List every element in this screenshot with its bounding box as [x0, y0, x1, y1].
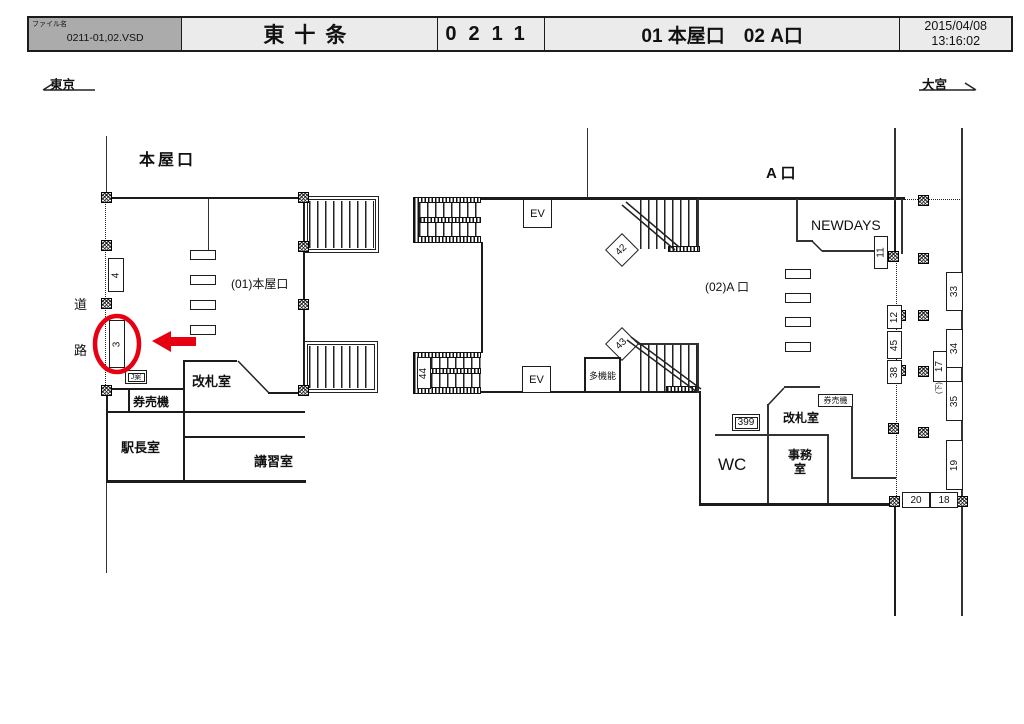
- date-value: 2015/04/08: [924, 19, 987, 34]
- wall-segment: [851, 406, 853, 479]
- ad-position-44-label: 44: [419, 367, 430, 378]
- pillar: [888, 251, 899, 262]
- wall-segment: [827, 434, 829, 505]
- stair-treads: [640, 345, 697, 391]
- sign-stem-line: [208, 199, 209, 251]
- wall-segment: [715, 434, 828, 436]
- wall-segment: [481, 242, 483, 353]
- ticket-machine-room-label: 券売機: [133, 393, 169, 410]
- ad-position-35-label: 35: [949, 395, 960, 406]
- training-room-label: 講習室: [254, 451, 293, 470]
- wall-segment: [767, 404, 769, 505]
- hanging-sign: [190, 325, 216, 335]
- ad-position-399: 399: [732, 414, 760, 431]
- pillar: [298, 192, 309, 203]
- right-area-label: (02)A 口: [705, 278, 749, 295]
- ad-position-43: 43: [605, 327, 639, 361]
- ad-position-42-label: 42: [614, 242, 630, 258]
- stair-hatch-band: [668, 246, 700, 252]
- pillar: [888, 423, 899, 434]
- wall-segment: [183, 360, 185, 482]
- wall-segment: [699, 503, 898, 506]
- newdays-label: NEWDAYS: [811, 217, 881, 233]
- kiosk-line: [796, 199, 798, 241]
- ad-position-34-label: 34: [949, 343, 960, 354]
- wall-segment: [106, 197, 306, 199]
- stair-treads: [640, 199, 698, 249]
- staircase: [304, 341, 378, 393]
- wall-segment: [851, 477, 896, 479]
- platform-line: [894, 128, 896, 201]
- staircase: [304, 196, 379, 253]
- wall-segment: [894, 199, 896, 254]
- ad-position-35: 35: [946, 381, 963, 421]
- road-label-2: 路: [74, 340, 87, 359]
- stair-edge: [697, 199, 699, 252]
- ad-position-33: 33: [946, 272, 963, 311]
- hanging-sign: [785, 293, 811, 303]
- stair-treads: [309, 201, 374, 248]
- boundary-line: [106, 136, 107, 197]
- pillar: [918, 427, 929, 438]
- multifunction-toilet: 多機能: [584, 357, 621, 393]
- dotted-facade-line: [105, 199, 106, 391]
- ad-position-43-label: 43: [614, 336, 630, 352]
- wall-segment: [784, 386, 820, 388]
- ad-position-42: 42: [605, 233, 639, 267]
- ad-position-399-label: 399: [735, 417, 758, 429]
- ad-position-34: 34: [946, 329, 963, 368]
- ad-position-19-label: 19: [949, 459, 960, 470]
- right-entrance-title: A 口: [766, 162, 795, 183]
- entrance-list: 01 本屋口 02 A口: [545, 18, 901, 50]
- pillar: [918, 310, 929, 321]
- pillar: [101, 298, 112, 309]
- direction-omiya-label: 大宮: [922, 74, 947, 93]
- stair-treads: [431, 374, 481, 387]
- ad-position-19: 19: [946, 440, 963, 490]
- stair-edge: [697, 343, 699, 393]
- kiosk-line: [796, 240, 813, 242]
- ad-position-3-label: 3: [112, 341, 123, 347]
- ad-position-12: 12: [887, 305, 902, 329]
- boundary-line: [106, 482, 107, 573]
- file-name-caption: ファイル名: [32, 19, 67, 29]
- j-sign-box: J案: [125, 370, 147, 384]
- pillar: [101, 240, 112, 251]
- datetime-cell: 2015/04/08 13:16:02: [900, 18, 1011, 50]
- left-area-label: (01)本屋口: [231, 275, 288, 292]
- stationmaster-room-label: 駅長室: [121, 437, 160, 456]
- ad-position-38: 38: [887, 360, 902, 384]
- stair-hatch-band: [666, 386, 696, 392]
- wall-segment: [699, 391, 701, 506]
- ad-position-4: 4: [108, 258, 124, 292]
- wall-segment: [901, 199, 903, 254]
- hanging-sign: [190, 300, 216, 310]
- wall-segment: [106, 391, 108, 482]
- ad-position-45: 45: [887, 331, 902, 359]
- hanging-sign: [190, 250, 216, 260]
- stair-treads: [431, 358, 481, 368]
- j-sign-label: J案: [128, 373, 145, 382]
- ad-position-17: 17: [933, 351, 947, 382]
- left-entrance-title: 本屋口: [139, 146, 196, 170]
- pillar: [957, 496, 968, 507]
- wall-segment: [106, 480, 306, 483]
- file-name-value: 0211-01,02.VSD: [67, 32, 144, 44]
- kiosk-diagonal: [812, 241, 822, 251]
- pillar: [101, 385, 112, 396]
- wall-segment: [183, 360, 237, 362]
- wc-label: WC: [718, 455, 746, 475]
- platform-line: [894, 504, 896, 616]
- ad-position-11: 11: [874, 236, 888, 269]
- stair-treads: [309, 346, 373, 388]
- pillar: [298, 385, 309, 396]
- platform-line: [961, 128, 963, 616]
- wall-segment: [128, 388, 130, 413]
- title-block: ファイル名 0211-01,02.VSD 東十条 0211 01 本屋口 02 …: [27, 16, 1013, 52]
- right-gate-room-label: 改札室: [783, 409, 819, 426]
- hanging-sign: [785, 342, 811, 352]
- ad-position-11-label: 11: [875, 247, 886, 257]
- stair-treads: [419, 203, 481, 217]
- overlay-graphics: [0, 0, 1024, 724]
- ad-position-38-label: 38: [889, 366, 900, 377]
- office-room-line1: 事務: [788, 448, 812, 462]
- elevator-bottom: EV: [522, 366, 551, 393]
- ad-position-18: 18: [930, 492, 958, 508]
- station-name: 東十条: [182, 18, 438, 50]
- ad-position-12-label: 12: [889, 311, 900, 322]
- pillar: [298, 299, 309, 310]
- ad-position-4-label: 4: [111, 272, 122, 278]
- elevator-top: EV: [523, 199, 552, 228]
- direction-tokyo-label: 東京: [50, 74, 75, 93]
- time-value: 13:16:02: [931, 34, 980, 49]
- station-floor-plan-page: ファイル名 0211-01,02.VSD 東十条 0211 01 本屋口 02 …: [0, 0, 1024, 724]
- left-gate-room-label: 改札室: [192, 371, 231, 390]
- office-room-label: 事務 室: [778, 448, 822, 476]
- hanging-sign: [190, 275, 216, 285]
- stair-hatch-band: [413, 197, 419, 243]
- ad-position-17-note-text: (下): [934, 382, 944, 394]
- pillar: [298, 241, 309, 252]
- stair-treads: [419, 223, 481, 236]
- office-room-line2: 室: [794, 462, 806, 476]
- file-name-cell: ファイル名 0211-01,02.VSD: [29, 18, 182, 50]
- ad-position-44: 44: [417, 357, 431, 389]
- boundary-line: [587, 128, 588, 197]
- ad-position-3: 3: [109, 320, 125, 368]
- dotted-line: [903, 199, 962, 200]
- ad-position-33-label: 33: [949, 286, 960, 297]
- wall-segment: [107, 411, 305, 413]
- ad-position-17-label: 17: [935, 361, 946, 372]
- right-ticket-machine: 券売機: [818, 394, 853, 407]
- wall-segment: [107, 388, 183, 390]
- right-gate-diagonal: [768, 388, 784, 405]
- ad-position-20: 20: [902, 492, 930, 508]
- station-code: 0211: [438, 18, 545, 50]
- stair-hatch-band: [413, 236, 481, 243]
- hanging-sign: [785, 269, 811, 279]
- pillar: [918, 366, 929, 377]
- pillar: [889, 496, 900, 507]
- kiosk-line: [822, 250, 875, 252]
- pillar: [918, 253, 929, 264]
- pillar: [918, 195, 929, 206]
- left-gate-diagonal: [238, 361, 269, 393]
- road-label-1: 道: [74, 294, 87, 313]
- wall-segment: [183, 436, 305, 438]
- ad-position-45-label: 45: [889, 339, 900, 350]
- pillar: [101, 192, 112, 203]
- hanging-sign: [785, 317, 811, 327]
